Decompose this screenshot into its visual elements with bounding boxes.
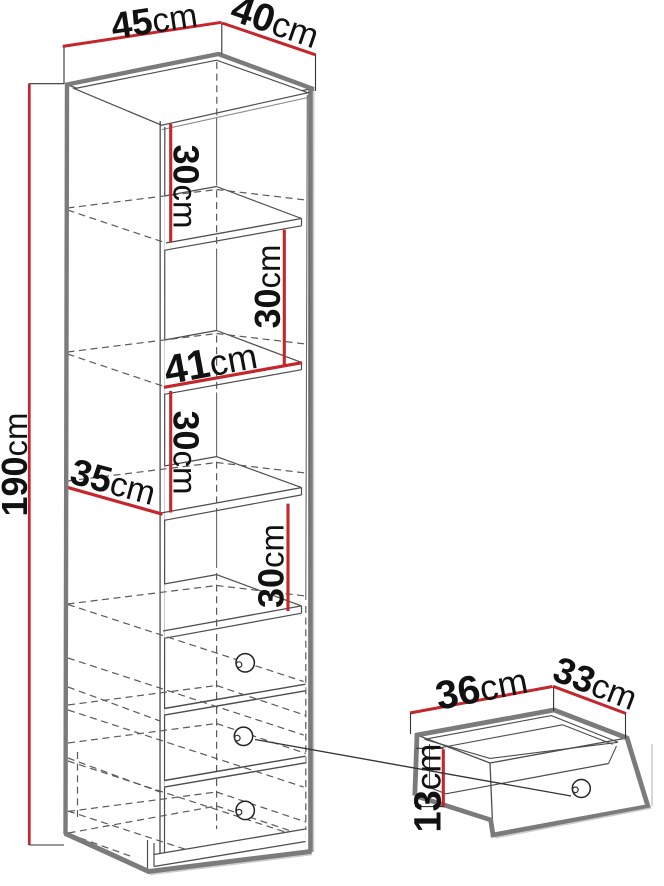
svg-text:30cm: 30cm (166, 410, 207, 494)
svg-text:30cm: 30cm (247, 244, 288, 328)
svg-text:13cm: 13cm (408, 744, 450, 833)
svg-text:30cm: 30cm (251, 524, 292, 608)
svg-text:190cm: 190cm (0, 412, 35, 516)
svg-text:30cm: 30cm (166, 144, 207, 228)
